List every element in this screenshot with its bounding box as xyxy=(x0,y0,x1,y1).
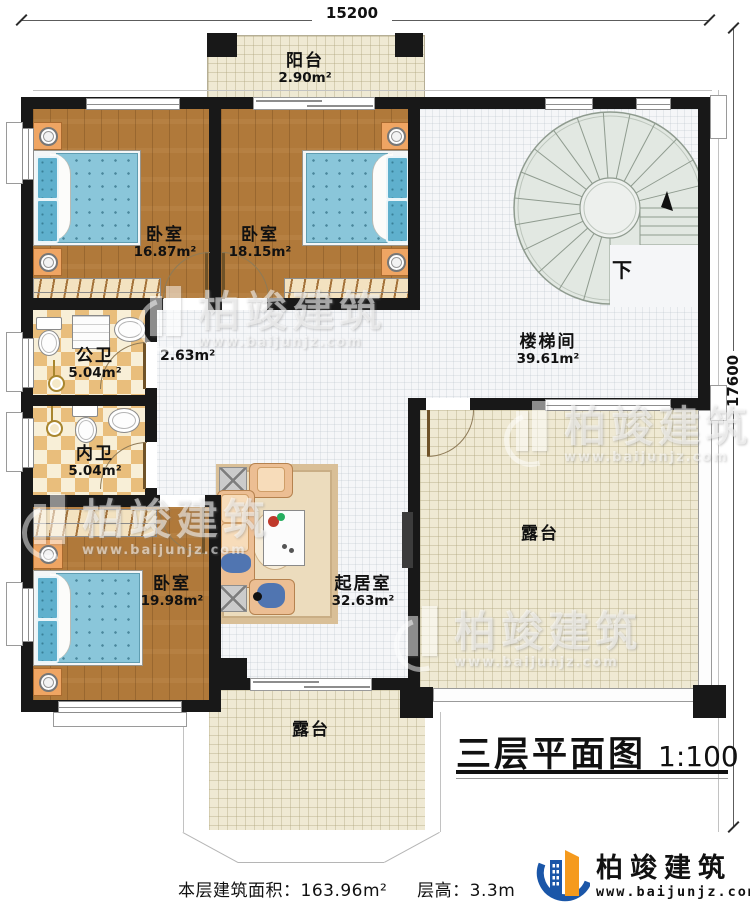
spiral-staircase xyxy=(505,105,715,310)
window-terrace-wall xyxy=(545,399,671,411)
bed-pillow xyxy=(386,156,409,200)
wardrobe xyxy=(33,509,157,537)
table-decor xyxy=(289,548,294,553)
door-gap-bedroom2 xyxy=(222,298,267,310)
terrace-bottom-floor xyxy=(209,690,425,830)
person-lying xyxy=(221,553,251,573)
nightstand xyxy=(33,668,62,696)
shower-tray xyxy=(72,315,110,349)
window-left-private-bath xyxy=(22,418,34,468)
bed-pillow xyxy=(386,199,409,243)
entry-step-diagonal-right xyxy=(384,832,440,863)
sill-left-1 xyxy=(6,122,23,184)
window-left-bedroom1 xyxy=(22,128,34,180)
floor-area-value: 163.96m² xyxy=(301,881,388,901)
nightstand xyxy=(381,248,410,276)
terrace-bottom-rail-right xyxy=(440,712,441,832)
nightstand xyxy=(33,539,63,569)
wall-right-stairwell xyxy=(698,97,710,410)
sill-left-3 xyxy=(6,412,23,472)
room-label-bedroom2: 卧室18.15m² xyxy=(200,226,320,260)
wall-bed2-hall xyxy=(408,97,420,310)
armchair-cushion xyxy=(257,467,285,492)
brand-logo: 柏竣建筑 www.baijunjz.com xyxy=(534,844,750,910)
dimension-top-value: 15200 xyxy=(312,4,392,22)
sink xyxy=(114,317,146,342)
pillar-living-corner xyxy=(209,658,247,690)
wall-bath-divider xyxy=(21,395,157,406)
sofa-cushion xyxy=(221,523,249,552)
room-label-stairwell: 楼梯间39.61m² xyxy=(488,333,608,367)
sill-bottom-bedroom3 xyxy=(53,712,187,727)
pillar-terrace-right xyxy=(693,685,726,718)
brand-company-name: 柏竣建筑 xyxy=(596,855,750,882)
bed-pillow xyxy=(36,576,59,620)
toilet-tank xyxy=(36,317,62,330)
eave-line-right xyxy=(718,90,719,832)
brand-logo-icon xyxy=(534,844,590,910)
sill-left-2 xyxy=(6,332,23,392)
room-label-terrace-right: 露台 xyxy=(480,525,600,544)
sill-left-4 xyxy=(6,582,23,646)
flower-leaf xyxy=(277,513,285,521)
window-stairwell-top-b xyxy=(636,98,671,110)
terrace-bottom-rail-left xyxy=(183,712,184,832)
entry-step-bottom xyxy=(238,862,384,863)
pillar-balcony-right xyxy=(395,33,423,57)
window-stairwell-top-a xyxy=(545,98,593,110)
room-label-balcony: 阳台2.90m² xyxy=(245,52,365,86)
toilet-bowl xyxy=(75,417,97,443)
bed-pillow xyxy=(36,156,59,200)
title-underline-thin xyxy=(456,778,728,779)
pillar-balcony-left xyxy=(207,33,237,57)
sill-right-mid xyxy=(710,385,727,421)
nightstand xyxy=(33,248,62,276)
door-gap-terrace xyxy=(426,398,470,410)
terrace-right-railing-bottom xyxy=(433,688,695,702)
footer-note: 本层建筑面积：163.96m² 层高：3.3m xyxy=(178,876,515,901)
pillar-terrace-bottom xyxy=(400,687,433,718)
window-bedroom1-top xyxy=(86,98,180,110)
floor-plan: 下 xyxy=(0,0,750,913)
brand-website: www.baijunjz.com xyxy=(596,884,750,900)
floor-drain xyxy=(46,420,63,437)
room-label-living: 起居室32.63m² xyxy=(303,575,423,609)
nightstand xyxy=(381,122,410,150)
room-label-terrace-bottom: 露台 xyxy=(251,721,371,740)
entry-step-diagonal-left xyxy=(183,832,239,863)
door-gap-bedroom3 xyxy=(160,495,205,507)
tv xyxy=(402,512,413,568)
table-decor xyxy=(282,544,287,549)
sofa-cushion xyxy=(221,494,249,523)
window-left-bedroom3 xyxy=(22,588,34,642)
window-bedroom3-bottom xyxy=(58,701,182,713)
dimension-line-right xyxy=(733,28,734,828)
person-head xyxy=(253,592,262,601)
floor-area-label: 本层建筑面积： xyxy=(178,881,301,901)
title-underline-thick xyxy=(456,770,728,774)
floor-height-value: 3.3m xyxy=(470,881,516,901)
terrace-right-railing xyxy=(698,410,712,688)
floor-drain-handle xyxy=(51,406,53,421)
room-label-public-bath: 公卫5.04m² xyxy=(55,347,135,381)
drawing-scale: 1:100 xyxy=(658,740,739,773)
sink xyxy=(108,408,140,433)
terrace-right-floor xyxy=(420,410,698,690)
sliding-door-balcony xyxy=(253,97,375,110)
stair-down-label: 下 xyxy=(612,254,632,283)
window-left-public-bath xyxy=(22,338,34,388)
room-label-bedroom3: 卧室19.98m² xyxy=(112,575,232,609)
wall-bed1-bed2 xyxy=(209,97,221,310)
wall-under-bedrooms xyxy=(21,298,420,310)
floor-height-label: 层高： xyxy=(417,881,470,901)
room-label-hall-area: 2.63m² xyxy=(160,348,215,364)
bed-pillow xyxy=(36,619,59,663)
sill-right-top xyxy=(710,95,727,139)
room-label-private-bath: 内卫5.04m² xyxy=(55,445,135,479)
eave-line-top xyxy=(33,90,712,91)
nightstand xyxy=(33,122,62,150)
door-gap-bedroom1 xyxy=(163,298,208,310)
bed-pillow xyxy=(36,199,59,243)
sliding-door-living-terrace xyxy=(250,678,372,691)
